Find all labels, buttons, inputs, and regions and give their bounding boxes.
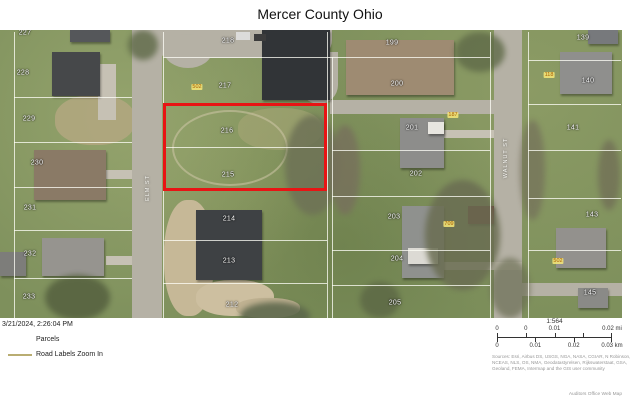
scale-km-label: 0.01: [529, 343, 541, 349]
parcel-number-label: 217: [219, 83, 232, 90]
parcel-number-label: 218: [222, 38, 235, 45]
parcel-number-label: 202: [410, 171, 423, 178]
parcel-number-label: 143: [586, 212, 599, 219]
address-point-label: 709: [443, 221, 454, 227]
legend-item: Road Labels Zoom In: [8, 347, 103, 362]
parcel-outline-icon: [8, 335, 32, 344]
map-labels-layer: 2272282292302312322332182172162152142132…: [0, 30, 622, 318]
parcel-number-label: 205: [389, 300, 402, 307]
parcel-number-label: 203: [388, 214, 401, 221]
scale-mi-label: 0: [495, 326, 498, 332]
scale-mi-label: 0.01: [549, 326, 561, 332]
map-canvas[interactable]: 2272282292302312322332182172162152142132…: [0, 30, 622, 318]
legend-item: Parcels: [8, 332, 103, 347]
parcel-number-label: 139: [577, 35, 590, 42]
parcel-number-label: 230: [31, 160, 44, 167]
page-title: Mercer County Ohio: [0, 6, 640, 22]
parcel-number-label: 214: [223, 216, 236, 223]
scale-mi-label: 0.02 mi: [602, 326, 622, 332]
parcel-number-label: 141: [567, 125, 580, 132]
scale-tick: [535, 338, 536, 342]
scale-ratio: 1:564: [497, 318, 612, 325]
footer: 3/21/2024, 2:26:04 PM ParcelsRoad Labels…: [0, 318, 640, 414]
timestamp: 3/21/2024, 2:26:04 PM: [2, 321, 73, 328]
address-point-label: 502: [552, 258, 563, 264]
road-line-icon: [8, 354, 32, 356]
legend: ParcelsRoad Labels Zoom In: [8, 332, 103, 362]
scale-km-labels: 00.010.020.03 km: [497, 343, 612, 350]
attribution-text: Sources: Esri, Airbus DS, USGS, NGA, NAS…: [492, 354, 632, 373]
road-name-label: WALNUT ST: [503, 138, 509, 178]
parcel-number-label: 201: [406, 125, 419, 132]
scale-tick: [526, 333, 527, 337]
address-point-label: 187: [447, 112, 458, 118]
scale-km-label: 0.03 km: [601, 343, 622, 349]
parcel-number-label: 228: [17, 70, 30, 77]
road-name-label: ELM ST: [145, 175, 151, 201]
scale-tick: [497, 333, 498, 337]
legend-item-label: Road Labels Zoom In: [36, 351, 103, 358]
parcel-number-label: 213: [223, 258, 236, 265]
legend-item-label: Parcels: [36, 336, 59, 343]
parcel-number-label: 233: [23, 294, 36, 301]
scale-km-label: 0.02: [568, 343, 580, 349]
scale-km-label: 0: [495, 343, 498, 349]
parcel-number-label: 200: [391, 81, 404, 88]
scale-bar: 1:564 000.010.02 mi 00.010.020.03 km: [497, 318, 612, 352]
parcel-number-label: 145: [584, 290, 597, 297]
address-point-label: 502: [191, 84, 202, 90]
scale-mi-labels: 000.010.02 mi: [497, 326, 612, 333]
scale-mi-label: 0: [524, 326, 527, 332]
parcel-number-label: 229: [23, 116, 36, 123]
parcel-number-label: 232: [24, 251, 37, 258]
address-point-label: 118: [544, 72, 555, 78]
parcel-number-label: 215: [222, 172, 235, 179]
parcel-number-label: 204: [391, 256, 404, 263]
scale-tick: [611, 333, 612, 337]
scale-tick: [497, 338, 498, 342]
parcel-number-label: 227: [19, 30, 32, 37]
parcel-number-label: 199: [386, 40, 399, 47]
scale-tick: [583, 333, 584, 337]
parcel-number-label: 216: [221, 128, 234, 135]
print-page: Mercer County Ohio: [0, 0, 640, 414]
parcel-number-label: 231: [24, 205, 37, 212]
scale-tick: [611, 338, 612, 342]
parcel-number-label: 212: [226, 302, 239, 309]
scale-line: [497, 337, 612, 338]
scale-tick: [555, 333, 556, 337]
credit-text: Auditors Office Web Map: [492, 392, 622, 397]
parcel-number-label: 140: [582, 78, 595, 85]
scale-tick: [574, 338, 575, 342]
